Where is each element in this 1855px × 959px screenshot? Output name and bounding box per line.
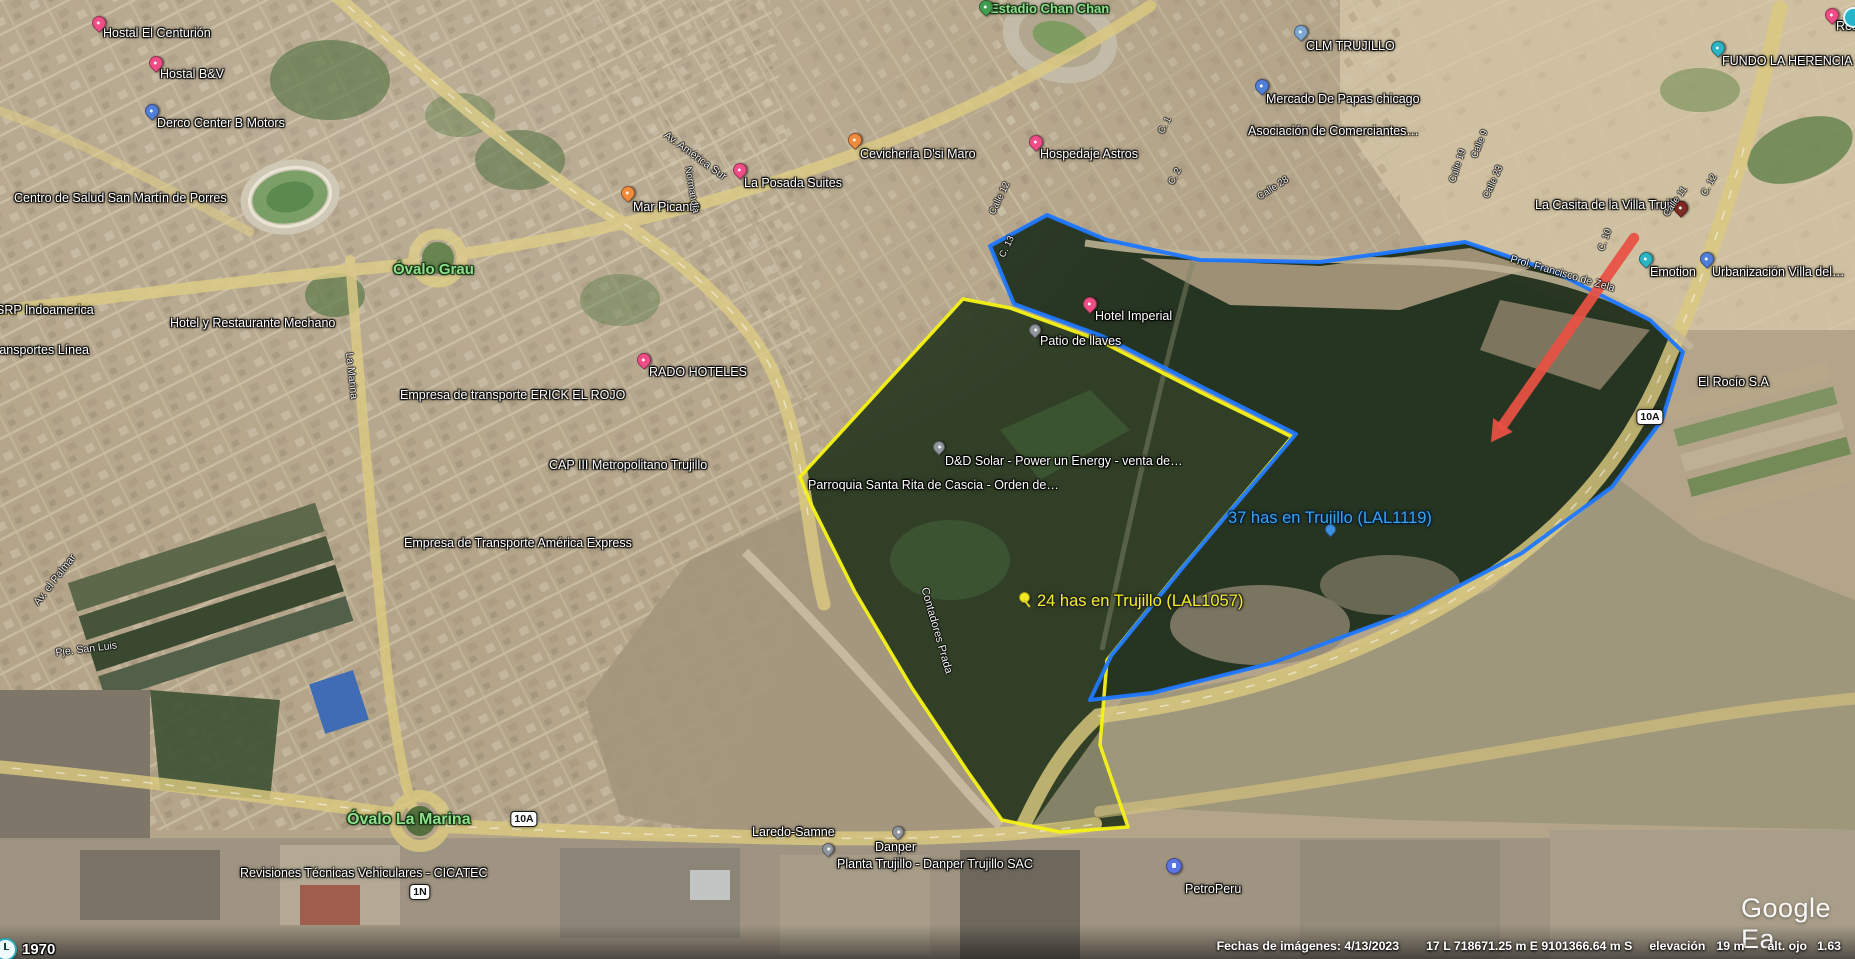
map-label-mercado-de-papas-chicago[interactable]: Mercado De Papas chicago [1266, 93, 1420, 107]
map-label-patio-de-llaves[interactable]: Patio de llaves [1040, 335, 1121, 349]
map-label-empresa-de-transporte-america-express[interactable]: Empresa de Transporte América Express [404, 537, 632, 551]
map-label-hostal-b-v[interactable]: Hostal B&V [160, 68, 224, 82]
map-label-d-d-solar-power-un-energy-venta-de[interactable]: D&D Solar - Power un Energy - venta de… [945, 455, 1183, 469]
map-label-hostal-el-centurion[interactable]: Hostal El Centurión [103, 27, 211, 41]
eye-altitude-label: alt. ojo [1767, 939, 1807, 953]
map-label-hospedaje-astros[interactable]: Hospedaje Astros [1040, 148, 1138, 162]
time-slider-year-badge[interactable]: 1970 [22, 941, 55, 958]
elevation-label: elevación [1649, 939, 1705, 953]
map-label-fundo-la-herencia[interactable]: FUNDO LA HERENCIA [1722, 55, 1853, 69]
map-label-cevicheria-d-si-maro[interactable]: Cevichería D'si Maro [860, 148, 976, 162]
status-bar: Fechas de imágenes: 4/13/2023 17 L 71867… [1217, 933, 1855, 959]
map-label-la-posada-suites[interactable]: La Posada Suites [744, 177, 842, 191]
map-label-estadio-chan-chan[interactable]: Estadio Chan Chan [990, 2, 1109, 16]
map-label-cap-iii-metropolitano-trujillo[interactable]: CAP III Metropolitano Trujillo [549, 459, 707, 473]
road-shield-10a: 10A [510, 811, 537, 827]
parcel-label-24-has-en-trujillo-lal1057[interactable]: 24 has en Trujillo (LAL1057) [1037, 592, 1243, 610]
map-label-clm-trujillo[interactable]: CLM TRUJILLO [1306, 40, 1395, 54]
map-label-ovalo-grau[interactable]: Óvalo Grau [393, 262, 474, 279]
map-label-hotel-y-restaurante-mechano[interactable]: Hotel y Restaurante Mechano [170, 317, 335, 331]
map-label-danper[interactable]: Danper [875, 841, 916, 855]
map-label-centro-de-salud-san-martin-de-porres[interactable]: Centro de Salud San Martín de Porres [14, 192, 227, 206]
map-label-rado-hoteles[interactable]: RADO HOTELES [649, 366, 747, 380]
map-label-emotion[interactable]: Emotion [1650, 266, 1696, 280]
map-label-derco-center-b-motors[interactable]: Derco Center B Motors [157, 117, 285, 131]
utm-coordinates: 17 L 718671.25 m E 9101366.64 m S [1426, 939, 1632, 953]
map-label-empresa-de-transporte-erick-el-rojo[interactable]: Empresa de transporte ERICK EL ROJO [400, 389, 625, 403]
map-label-laredo-samne[interactable]: Laredo-Samne [752, 826, 835, 840]
road-shield-10a: 10A [1636, 409, 1663, 425]
map-label-petroperu[interactable]: PetroPeru [1185, 883, 1241, 897]
google-earth-map-viewport[interactable]: Hostal El CenturiónHostal B&VDerco Cente… [0, 0, 1855, 959]
map-label-revisiones-tecnicas-vehiculares-cicatec[interactable]: Revisiones Técnicas Vehiculares - CICATE… [240, 867, 488, 881]
map-label-planta-trujillo-danper-trujillo-sac[interactable]: Planta Trujillo - Danper Trujillo SAC [837, 858, 1033, 872]
map-label-asociacion-de-comerciantes[interactable]: Asociación de Comerciantes… [1248, 125, 1419, 139]
map-pin-pushpin[interactable] [1019, 592, 1035, 608]
eye-altitude-value: 1.63 [1817, 939, 1841, 953]
map-label-transportes-linea[interactable]: Transportes Línea [0, 344, 89, 358]
map-label-parroquia-santa-rita-de-cascia-orden-de[interactable]: Parroquia Santa Rita de Cascia - Orden d… [808, 479, 1059, 493]
map-label-ovalo-la-marina[interactable]: Óvalo La Marina [347, 811, 471, 829]
map-label-srp-indoamerica[interactable]: SRP Indoamerica [0, 304, 94, 318]
map-pin-petroperu[interactable] [1166, 858, 1182, 874]
map-label-el-rocio-s-a[interactable]: El Rocío S.A [1698, 376, 1769, 390]
map-label-urbanizacion-villa-del[interactable]: Urbanización Villa del… [1712, 266, 1844, 280]
map-label-hotel-imperial[interactable]: Hotel Imperial [1095, 310, 1172, 324]
road-shield-1n: 1N [409, 884, 430, 900]
elevation-value: 19 m [1716, 939, 1744, 953]
imagery-date: Fechas de imágenes: 4/13/2023 [1217, 939, 1400, 953]
